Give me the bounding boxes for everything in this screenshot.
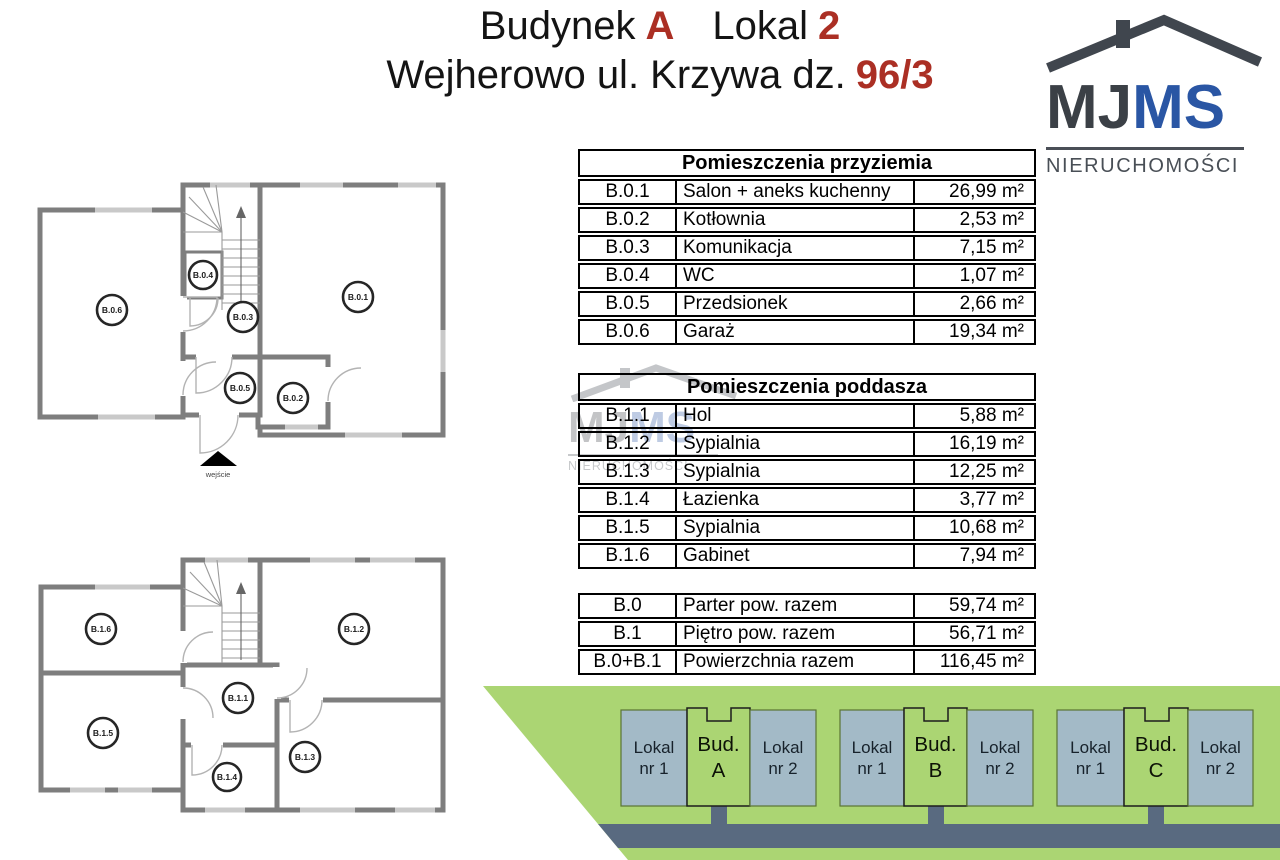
door-gap [289,696,323,704]
building-label-a: Bud. A [687,712,750,804]
room-name-cell: Sypialnia [677,515,915,541]
door-gap [199,411,239,419]
table-row: B.0.6Garaż19,34 m² [578,319,1036,345]
table-header-row: Pomieszczenia przyziemia [578,149,1036,177]
table-row: B.1.1Hol5,88 m² [578,403,1036,429]
room-id-cell: B.0.5 [578,291,677,317]
unit-label-text: Lokal nr 2 [755,737,811,780]
table-row: B.0.2Kotłownia2,53 m² [578,207,1036,233]
ground-floor-plan: wejście B.0.1 B.0.2 B.0.3 B.0.4 B.0.5 B.… [30,175,460,485]
level-id-cell: B.0 [578,593,677,619]
room-name-cell: Garaż [677,319,915,345]
table-row: B.1.2Sypialnia16,19 m² [578,431,1036,457]
entrance-label: wejście [205,470,231,479]
table-row: B.0.1Salon + aneks kuchenny26,99 m² [578,179,1036,205]
room-area-cell: 2,53 m² [915,207,1036,233]
title-unit-number: 2 [818,4,840,48]
room-id-cell: B.0.1 [578,179,677,205]
title-unit-word: Lokal [712,4,808,48]
driveway-c [1148,804,1164,826]
room-area-cell: 19,34 m² [915,319,1036,345]
driveway-b [928,804,944,826]
title-plot-number: 96/3 [856,53,934,97]
room-label: B.0.6 [102,305,123,315]
room-name-cell: Salon + aneks kuchenny [677,179,915,205]
room-id-cell: B.1.1 [578,403,677,429]
unit-label-b1: Lokal nr 1 [840,710,904,806]
logo-ms: MS [1132,73,1225,142]
room-area-cell: 26,99 m² [915,179,1036,205]
title-line-2: Wejherowo ul. Krzywa dz.96/3 [280,51,1040,100]
table-row: B.1.6Gabinet7,94 m² [578,543,1036,569]
mjms-roof-icon [1040,8,1272,74]
mjms-logo: MJMS NIERUCHOMOŚCI [1040,8,1272,178]
level-id-cell: B.0+B.1 [578,649,677,675]
room-id-cell: B.1.3 [578,459,677,485]
room-name-cell: Hol [677,403,915,429]
table-row: B.0.4WC1,07 m² [578,263,1036,289]
room-id-cell: B.1.4 [578,487,677,513]
level-name-cell: Piętro pow. razem [677,621,915,647]
room-id-cell: B.0.3 [578,235,677,261]
room-area-cell: 1,07 m² [915,263,1036,289]
unit-label-a1: Lokal nr 1 [621,710,687,806]
room-id-cell: B.0.2 [578,207,677,233]
room-area-cell: 12,25 m² [915,459,1036,485]
title-building-word: Budynek [480,4,636,48]
logo-subtitle: NIERUCHOMOŚCI [1040,155,1272,178]
room-label: B.0.1 [348,292,369,302]
table-header-row: Pomieszczenia poddasza [578,373,1036,401]
page-title: BudynekALokal2 Wejherowo ul. Krzywa dz.9… [280,2,1040,100]
listing-flyer: { "header": { "title_part1": "Budynek", … [0,0,1280,860]
room-label: B.1.3 [295,752,316,762]
room-name-cell: Kotłownia [677,207,915,233]
room-label: B.1.1 [228,693,249,703]
room-name-cell: Sypialnia [677,459,915,485]
room-area-cell: 7,94 m² [915,543,1036,569]
room-name-cell: Sypialnia [677,431,915,457]
level-area-cell: 56,71 m² [915,621,1036,647]
room-label: B.1.2 [344,624,365,634]
unit-label-c2: Lokal nr 2 [1188,710,1253,806]
unit-label-text: Lokal nr 1 [1063,737,1119,780]
unit-label-a2: Lokal nr 2 [750,710,816,806]
summary-table: B.0Parter pow. razem59,74 m² B.1Piętro p… [578,591,1036,677]
room-label: B.1.4 [217,772,238,782]
room-area-cell: 10,68 m² [915,515,1036,541]
room-name-cell: Przedsionek [677,291,915,317]
room-id-cell: B.1.6 [578,543,677,569]
room-label: B.1.5 [93,728,114,738]
building-label-c: Bud. C [1124,712,1188,804]
title-address: Wejherowo ul. Krzywa dz. [386,53,845,97]
door-gap [191,741,223,749]
room-id-cell: B.0.4 [578,263,677,289]
room-label: B.0.4 [193,270,214,280]
unit-label-c1: Lokal nr 1 [1057,710,1124,806]
level-id-cell: B.1 [578,621,677,647]
room-id-cell: B.0.6 [578,319,677,345]
attic-table-title: Pomieszczenia poddasza [578,373,1036,401]
room-area-cell: 5,88 m² [915,403,1036,429]
room-label: B.0.3 [233,312,254,322]
unit-label-b2: Lokal nr 2 [967,710,1033,806]
room-name-cell: Łazienka [677,487,915,513]
level-name-cell: Parter pow. razem [677,593,915,619]
table-row: B.1Piętro pow. razem56,71 m² [578,621,1036,647]
room-name-cell: WC [677,263,915,289]
room-label: B.1.6 [91,624,112,634]
door-gap [179,296,187,332]
table-row: B.0.3Komunikacja7,15 m² [578,235,1036,261]
logo-wordmark: MJMS [1040,79,1272,137]
room-area-cell: 2,66 m² [915,291,1036,317]
level-area-cell: 59,74 m² [915,593,1036,619]
table-row: B.1.5Sypialnia10,68 m² [578,515,1036,541]
building-label-text: Bud. C [1132,732,1180,783]
room-area-cell: 16,19 m² [915,431,1036,457]
table-row: B.0+B.1Powierzchnia razem116,45 m² [578,649,1036,675]
room-name-cell: Gabinet [677,543,915,569]
room-area-cell: 7,15 m² [915,235,1036,261]
logo-mj: MJ [1046,73,1132,142]
table-row: B.0Parter pow. razem59,74 m² [578,593,1036,619]
room-id-cell: B.1.5 [578,515,677,541]
level-area-cell: 116,45 m² [915,649,1036,675]
room-label: B.0.5 [230,383,251,393]
entrance-door [200,415,238,453]
level-name-cell: Powierzchnia razem [677,649,915,675]
attic-table: Pomieszczenia poddasza B.1.1Hol5,88 m² B… [578,371,1036,571]
door-gap [179,687,187,719]
ground-table-title: Pomieszczenia przyziemia [578,149,1036,177]
unit-label-text: Lokal nr 1 [626,737,682,780]
table-row: B.1.4Łazienka3,77 m² [578,487,1036,513]
room-area-cell: 3,77 m² [915,487,1036,513]
building-label-b: Bud. B [904,712,967,804]
door-gap [273,667,281,699]
attic-plan: B.1.1 B.1.2 B.1.3 B.1.4 B.1.5 B.1.6 [30,550,460,820]
driveway-a [711,804,727,826]
logo-divider [1046,147,1244,150]
room-id-cell: B.1.2 [578,431,677,457]
building-label-text: Bud. B [912,732,960,783]
building-label-text: Bud. A [695,732,743,783]
unit-label-text: Lokal nr 2 [1193,737,1249,780]
road [598,824,1280,848]
ground-floor-table: Pomieszczenia przyziemia B.0.1Salon + an… [578,147,1036,347]
table-row: B.0.5Przedsionek2,66 m² [578,291,1036,317]
title-line-1: BudynekALokal2 [280,2,1040,51]
unit-label-text: Lokal nr 1 [844,737,900,780]
title-building-letter: A [645,4,674,48]
table-row: B.1.3Sypialnia12,25 m² [578,459,1036,485]
room-label: B.0.2 [283,393,304,403]
unit-label-text: Lokal nr 2 [972,737,1028,780]
room-name-cell: Komunikacja [677,235,915,261]
